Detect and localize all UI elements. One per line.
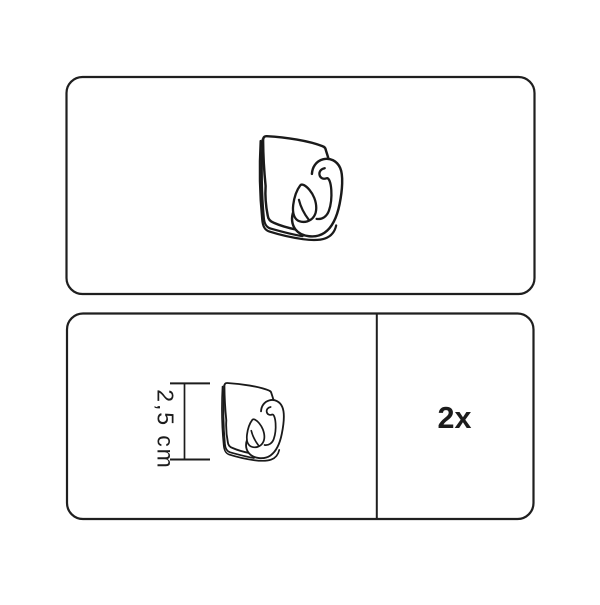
svg-text:2,5 cm: 2,5 cm bbox=[152, 389, 178, 469]
svg-text:2x: 2x bbox=[438, 401, 472, 435]
